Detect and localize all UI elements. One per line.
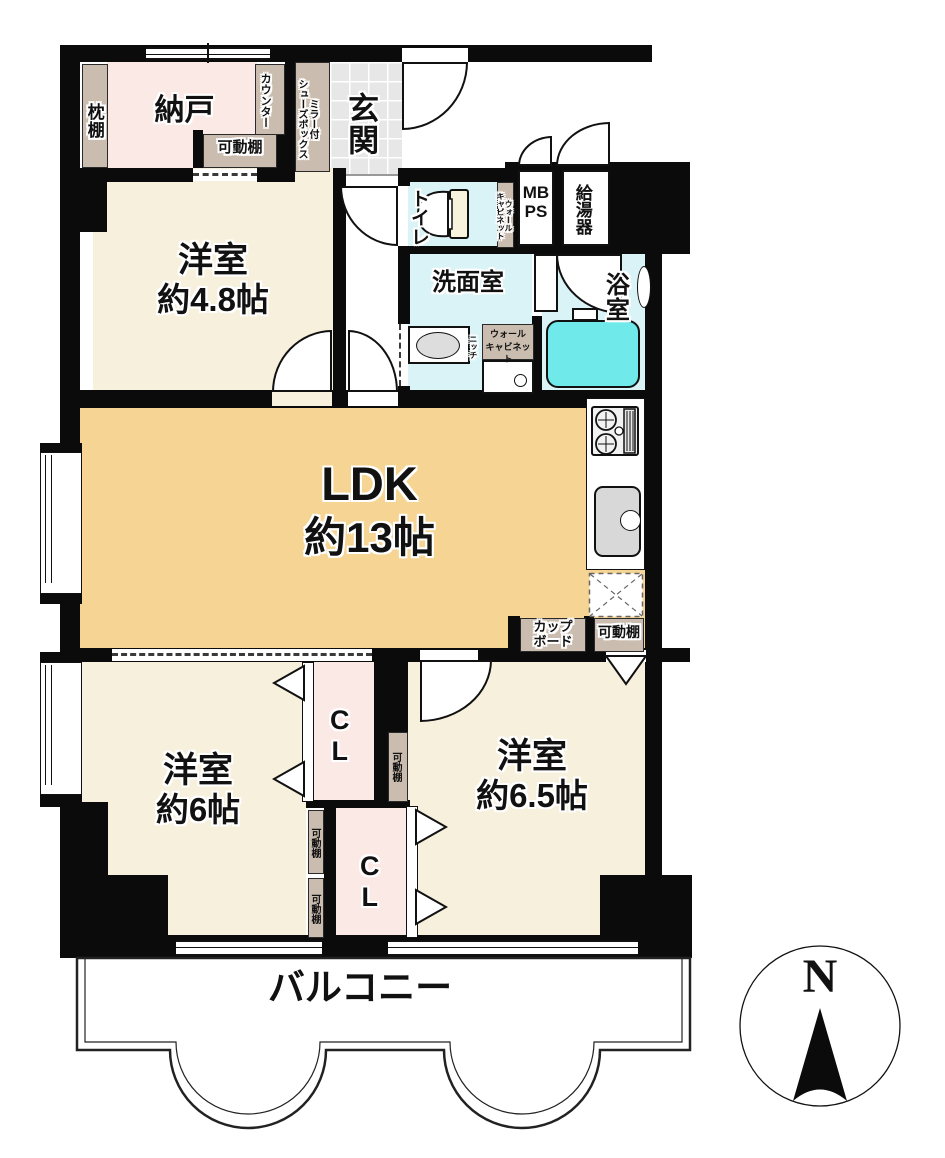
label-makuradana: 枕棚 <box>84 88 103 154</box>
washbasin-icon <box>416 332 460 359</box>
bath-mirror <box>637 266 651 308</box>
refrigerator-space-icon <box>588 572 644 618</box>
label-closet-b: CL <box>354 844 384 920</box>
door-gap <box>348 392 398 406</box>
bifold-door-icon <box>602 654 650 688</box>
label-counter: カウンター <box>259 67 271 133</box>
sliding-door-dashed <box>399 324 405 386</box>
wall <box>60 168 193 182</box>
wall <box>108 875 168 958</box>
bay-window-west6 <box>40 662 82 795</box>
label-ldk: LDK 約13帖 <box>212 458 527 561</box>
label-movable-shelf: 可動棚 <box>309 812 320 874</box>
bay-window-ldk <box>40 452 82 594</box>
wall <box>285 62 295 168</box>
north-compass-icon: N <box>730 928 910 1113</box>
toilet-door-swing <box>340 186 398 246</box>
label-movable-shelf: 可動棚 <box>309 880 320 938</box>
bifold-door-icon <box>414 806 450 938</box>
label-shoes-box: ミラー付 シューズボックス <box>296 68 318 170</box>
label-nando: 納戸 <box>122 94 247 127</box>
wall <box>398 168 410 186</box>
label-west48: 洋室 約4.8帖 <box>100 242 326 319</box>
label-niche: ニッチ <box>468 329 477 365</box>
floorplan-canvas: N 納戸 枕棚 カウンター 可動棚 ミラー付 シューズボックス 玄関 トイレ ウ… <box>0 0 945 1158</box>
label-water-heater: 給湯器 <box>572 177 591 241</box>
label-washroom: 洗面室 <box>408 270 528 296</box>
wall <box>508 616 520 654</box>
entry-door-gap <box>402 48 468 62</box>
entry-door-swing <box>402 62 468 130</box>
label-wall-cabinet-box: ウォール キャビネット <box>483 328 533 366</box>
label-movable-shelf: 可動棚 <box>390 734 401 800</box>
compass-north-label: N <box>803 950 838 1003</box>
label-bathroom: 浴室 <box>601 262 627 332</box>
label-wall-cabinet-strip: ウォール キャビネット <box>496 184 512 248</box>
label-meter-box: MB PS <box>518 184 554 221</box>
hall-ldk-door-swing <box>348 330 398 392</box>
bath-door-slab <box>534 254 558 312</box>
label-west65: 洋室 約6.5帖 <box>424 738 640 815</box>
bath-counter <box>572 308 598 321</box>
sliding-window-balcony-right <box>388 940 638 956</box>
drain-icon <box>514 374 527 387</box>
stove-icon <box>590 403 642 459</box>
wall <box>374 662 388 802</box>
wall <box>324 808 336 938</box>
window-tick <box>207 43 209 63</box>
wall <box>645 246 662 662</box>
wall <box>193 130 203 168</box>
meter-box-door-swing <box>518 136 552 166</box>
nando-opening <box>193 169 257 181</box>
faucet-icon <box>620 510 641 531</box>
wall <box>257 168 295 182</box>
water-heater-door-swing <box>556 122 610 166</box>
label-closet-a: CL <box>324 698 354 774</box>
sliding-window-balcony-left <box>176 940 322 956</box>
label-toilet: トイレ <box>407 186 428 248</box>
door-gap <box>272 392 332 406</box>
label-genkan: 玄関 <box>343 78 377 170</box>
label-movable-shelf: 可動棚 <box>594 625 644 640</box>
wall <box>645 662 662 877</box>
wall <box>398 168 510 182</box>
ldk-sliding-partition <box>112 649 372 661</box>
label-balcony: バルコニー <box>235 968 485 1009</box>
label-movable-shelf: 可動棚 <box>205 140 275 157</box>
label-west6: 洋室 約6帖 <box>92 752 304 829</box>
label-cupboard: カップ ボード <box>521 620 585 650</box>
